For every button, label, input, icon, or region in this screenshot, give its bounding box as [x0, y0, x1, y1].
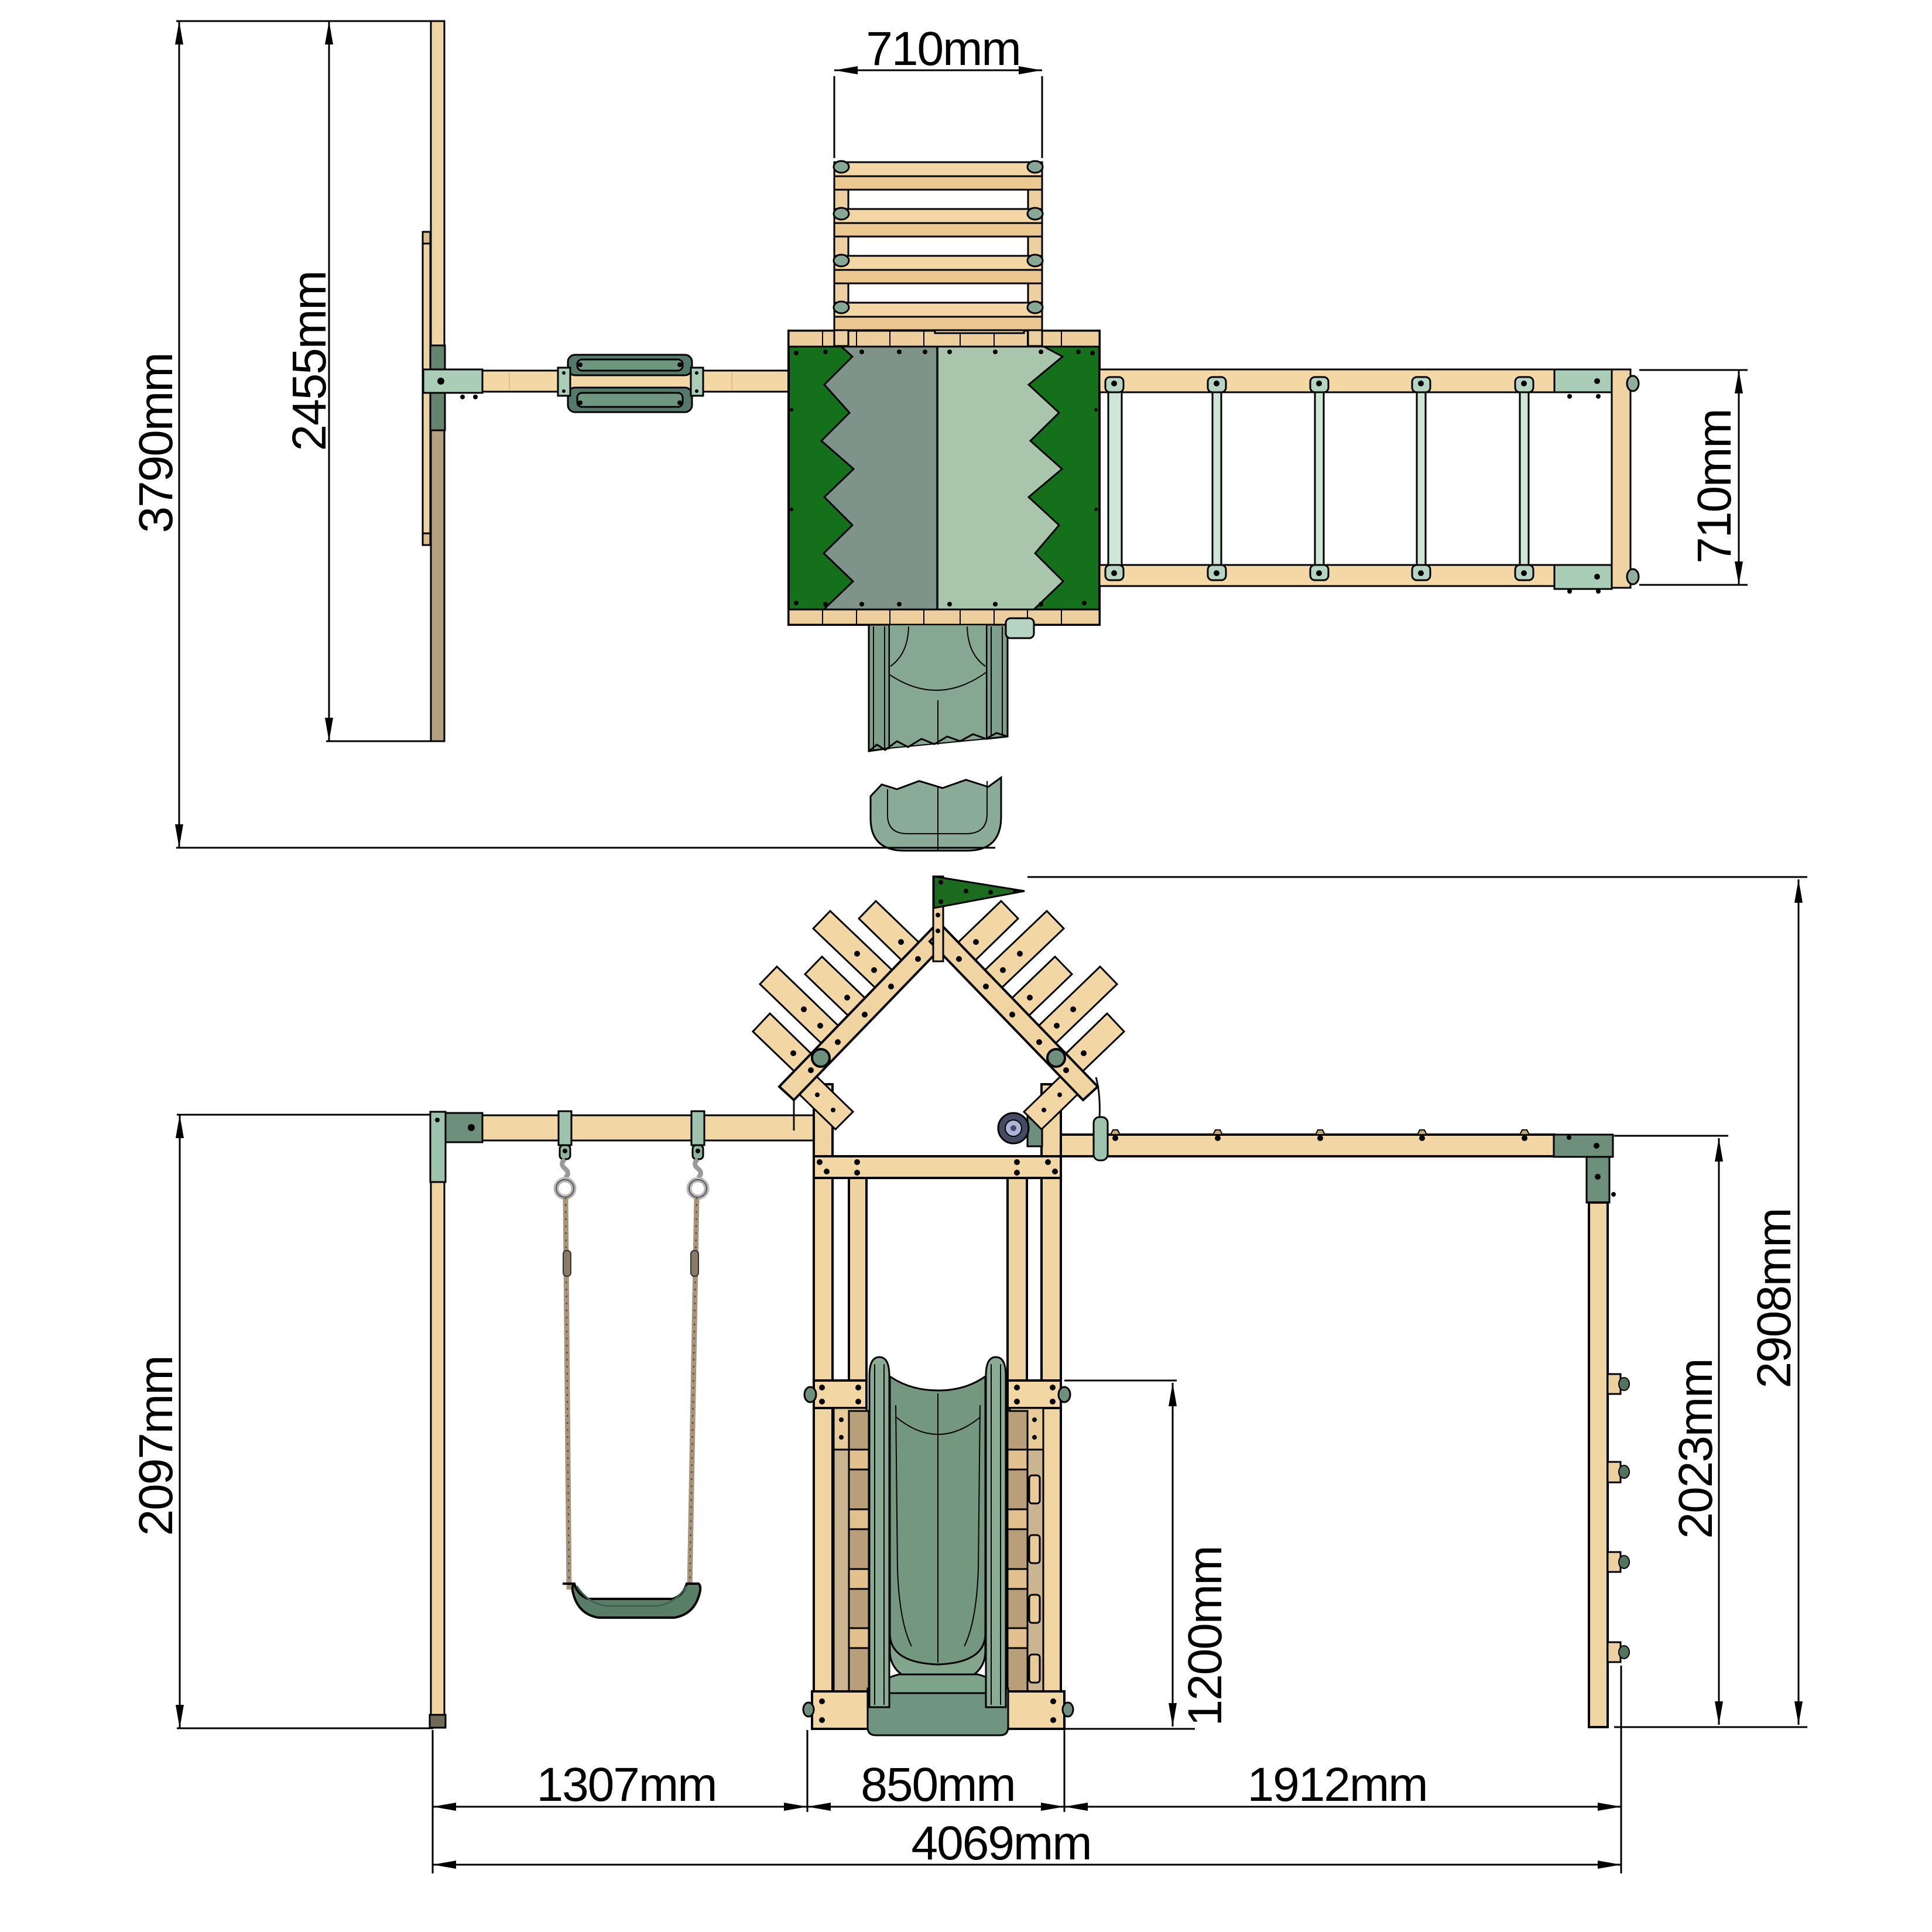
- svg-text:1307mm: 1307mm: [536, 1758, 716, 1811]
- svg-text:4069mm: 4069mm: [911, 1817, 1091, 1870]
- svg-text:710mm: 710mm: [1688, 409, 1741, 563]
- svg-text:2097mm: 2097mm: [129, 1356, 183, 1536]
- svg-text:850mm: 850mm: [861, 1758, 1015, 1811]
- svg-text:710mm: 710mm: [866, 22, 1020, 76]
- svg-text:2023mm: 2023mm: [1669, 1359, 1722, 1539]
- svg-text:1912mm: 1912mm: [1247, 1758, 1427, 1811]
- svg-text:3790mm: 3790mm: [129, 353, 183, 533]
- svg-text:2908mm: 2908mm: [1748, 1208, 1801, 1388]
- svg-text:1200mm: 1200mm: [1179, 1546, 1232, 1726]
- svg-text:2455mm: 2455mm: [283, 271, 336, 451]
